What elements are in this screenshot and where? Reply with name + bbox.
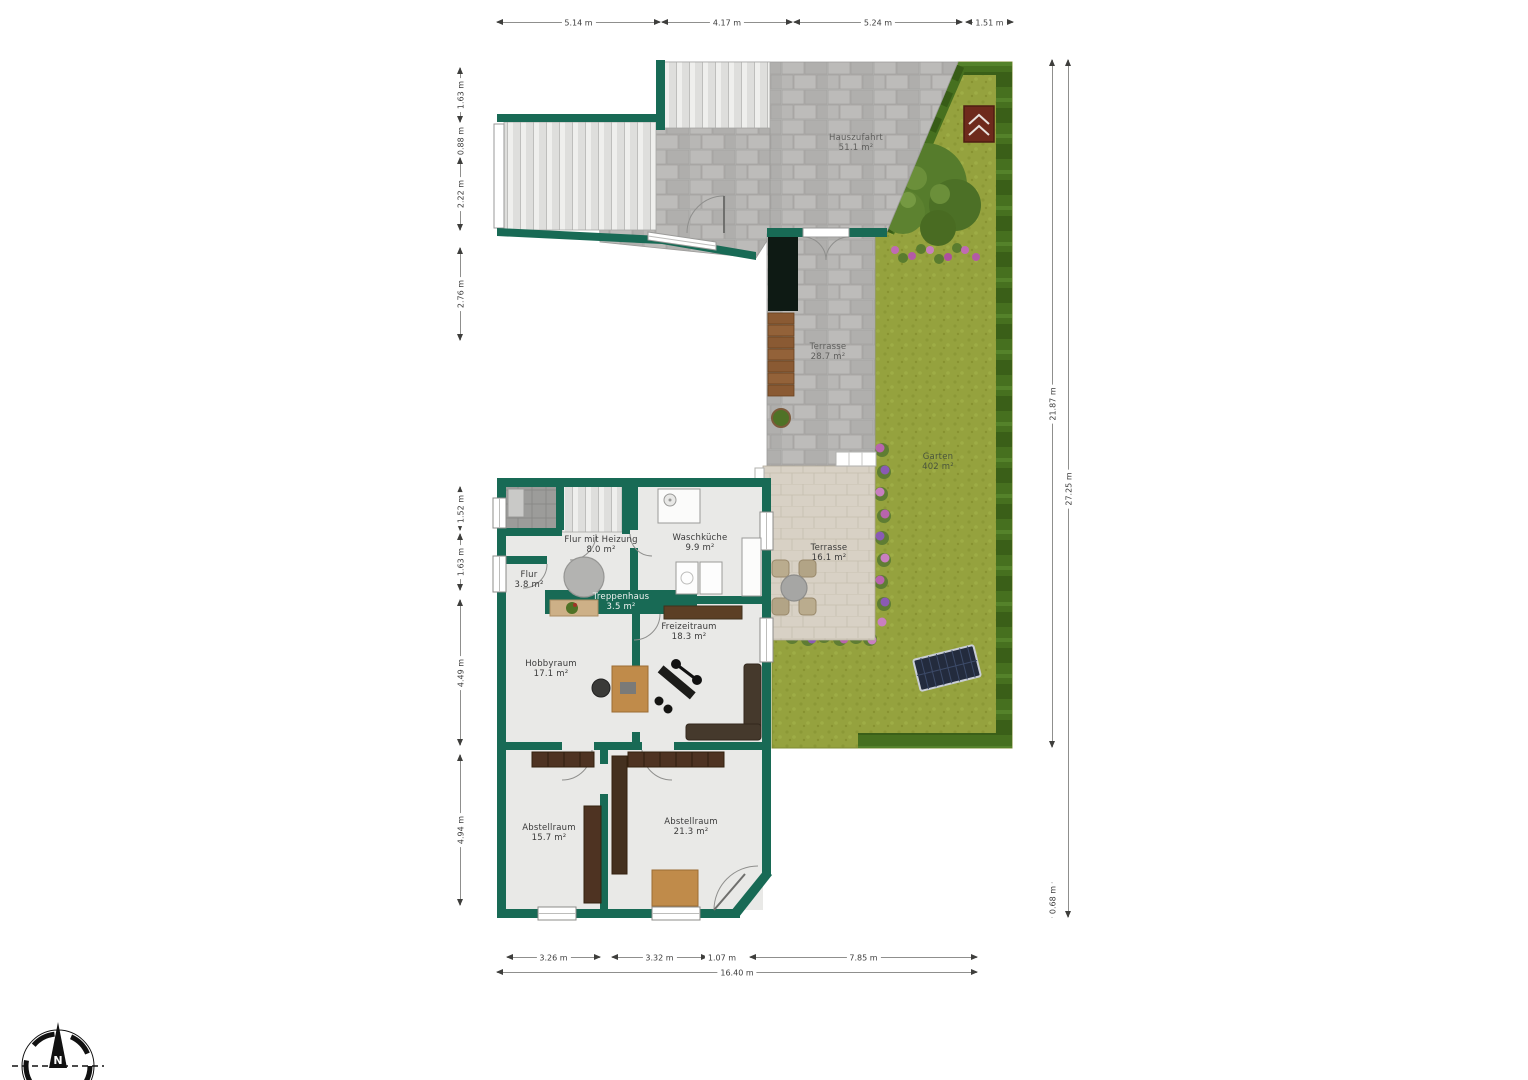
dimension: 21.87 m	[1052, 60, 1053, 747]
room-name: Treppenhaus	[593, 592, 650, 602]
garden-gate-icon	[964, 106, 994, 142]
hedge-bottom	[858, 733, 1012, 748]
dimension-arrow	[654, 19, 661, 25]
wood-table	[652, 870, 698, 906]
compass-north-label: N	[53, 1054, 62, 1067]
room-area: 9.9 m²	[673, 543, 728, 553]
dimension-arrow	[506, 954, 513, 960]
dimension: 3.32 m	[612, 957, 707, 958]
room-area: 18.3 m²	[661, 632, 716, 642]
dimension-arrow	[457, 247, 463, 254]
room-label: Garten402 m²	[922, 452, 954, 472]
room-area: 3.5 m²	[593, 602, 650, 612]
room-label: Hobbyraum17.1 m²	[525, 659, 577, 679]
room-name: Hobbyraum	[525, 659, 577, 669]
dimension-arrow	[457, 584, 463, 591]
hedge-top	[958, 62, 1012, 75]
dimension: 1.63 m	[460, 534, 461, 590]
dimension-arrow	[457, 899, 463, 906]
dimension-arrow	[1065, 59, 1071, 66]
room-area: 15.7 m²	[522, 833, 576, 843]
dimension-arrow	[786, 19, 793, 25]
dimension-arrow	[965, 19, 972, 25]
dimension-label: 4.17 m	[710, 19, 744, 28]
dimension-arrow	[971, 954, 978, 960]
dimension-arrow	[793, 19, 800, 25]
room-name: Waschküche	[673, 533, 728, 543]
room-label: Waschküche9.9 m²	[673, 533, 728, 553]
dimension-arrow	[457, 67, 463, 74]
room-label: Abstellraum21.3 m²	[664, 817, 718, 837]
dimension-label: 5.14 m	[561, 19, 595, 28]
dimension-arrow	[457, 157, 463, 164]
dimension: 2.22 m	[460, 158, 461, 230]
dimension-label: 4.49 m	[457, 655, 466, 689]
room-label: Flur3.8 m²	[514, 570, 543, 590]
room-label: Abstellraum15.7 m²	[522, 823, 576, 843]
boiler-tank	[564, 557, 604, 597]
room-name: Terrasse	[810, 342, 847, 352]
dimension-arrow	[1065, 911, 1071, 918]
dimension-label: 3.26 m	[536, 954, 570, 963]
dimension: 1.07 m	[707, 957, 737, 958]
dimension-arrow	[1007, 19, 1014, 25]
dimension-arrow	[594, 954, 601, 960]
dimension-arrow	[661, 19, 668, 25]
dimension-label: 1.07 m	[705, 954, 739, 963]
room-label: Flur mit Heizung8.0 m²	[564, 535, 637, 555]
dimension-label: 2.76 m	[457, 277, 466, 311]
dimension-arrow	[1049, 741, 1055, 748]
dimension-label: 27.25 m	[1065, 469, 1074, 508]
dimension-arrow	[457, 533, 463, 540]
room-name: Terrasse	[811, 543, 848, 553]
dimension: 27.25 m	[1068, 60, 1069, 917]
hall-plant-table	[550, 600, 598, 616]
storage-fixture	[508, 489, 524, 517]
dimension: 1.51 m	[966, 22, 1013, 23]
room-name: Flur	[514, 570, 543, 580]
room-name: Flur mit Heizung	[564, 535, 637, 545]
dimension: 4.94 m	[460, 755, 461, 905]
hedge-right	[996, 62, 1012, 748]
room-label: Hauszufahrt51.1 m²	[829, 133, 883, 153]
dimension-label: 0.68 m	[1049, 883, 1058, 917]
room-area: 402 m²	[922, 462, 954, 472]
dimension-arrow	[457, 224, 463, 231]
dimension-arrow	[457, 334, 463, 341]
room-label: Freizeitraum18.3 m²	[661, 622, 716, 642]
interior-stairs	[562, 486, 622, 532]
dimension-arrow	[457, 599, 463, 606]
room-name: Abstellraum	[522, 823, 576, 833]
cabinet	[742, 538, 761, 596]
dimension-label: 1.63 m	[457, 78, 466, 112]
dimension: 4.49 m	[460, 600, 461, 745]
dimension-arrow	[611, 954, 618, 960]
room-area: 8.0 m²	[564, 545, 637, 555]
dimension: 5.24 m	[794, 22, 962, 23]
dimension: 4.17 m	[662, 22, 792, 23]
room-area: 17.1 m²	[525, 669, 577, 679]
room-label: Terrasse16.1 m²	[811, 543, 848, 563]
dimension-label: 4.94 m	[457, 813, 466, 847]
dimension-arrow	[457, 754, 463, 761]
sideboard	[664, 606, 742, 619]
room-name: Abstellraum	[664, 817, 718, 827]
dimension: 3.26 m	[507, 957, 600, 958]
room-area: 51.1 m²	[829, 143, 883, 153]
dimension: 7.85 m	[750, 957, 977, 958]
dimension: 0.68 m	[1052, 883, 1053, 917]
dimension-label: 1.52 m	[457, 491, 466, 525]
shower	[658, 489, 700, 523]
dimension-arrow	[457, 739, 463, 746]
dimension-arrow	[496, 969, 503, 975]
room-name: Garten	[922, 452, 954, 462]
room-area: 28.7 m²	[810, 352, 847, 362]
floor-plan-graphic: N	[0, 0, 1528, 1080]
dimension-label: 21.87 m	[1049, 384, 1058, 423]
dimension-label: 1.51 m	[972, 19, 1006, 28]
room-label: Terrasse28.7 m²	[810, 342, 847, 362]
room-name: Hauszufahrt	[829, 133, 883, 143]
dimension-label: 16.40 m	[717, 969, 756, 978]
dimension-arrow	[496, 19, 503, 25]
dimension: 1.52 m	[460, 487, 461, 530]
dimension: 0.88 m	[460, 126, 461, 155]
room-name: Freizeitraum	[661, 622, 716, 632]
room-label: Treppenhaus3.5 m²	[593, 592, 650, 612]
room-area: 3.8 m²	[514, 580, 543, 590]
dimension: 2.76 m	[460, 248, 461, 340]
dimension: 16.40 m	[497, 972, 977, 973]
dimension-label: 5.24 m	[861, 19, 895, 28]
compass-icon: N	[12, 1022, 104, 1080]
floor-plan-page: N 5.14 m4.17 m5.24 m1.51 m1.63 m0.88 m2.…	[0, 0, 1528, 1080]
dimension-label: 7.85 m	[846, 954, 880, 963]
dimension-label: 2.22 m	[457, 177, 466, 211]
dimension-arrow	[1049, 59, 1055, 66]
dimension-label: 0.88 m	[457, 123, 466, 157]
room-area: 21.3 m²	[664, 827, 718, 837]
dimension: 5.14 m	[497, 22, 660, 23]
dimension: 1.63 m	[460, 68, 461, 122]
dimension-label: 3.32 m	[642, 954, 676, 963]
dimension-arrow	[971, 969, 978, 975]
room-area: 16.1 m²	[811, 553, 848, 563]
dimension-arrow	[457, 116, 463, 123]
dimension-arrow	[749, 954, 756, 960]
dimension-label: 1.63 m	[457, 545, 466, 579]
dimension-arrow	[956, 19, 963, 25]
